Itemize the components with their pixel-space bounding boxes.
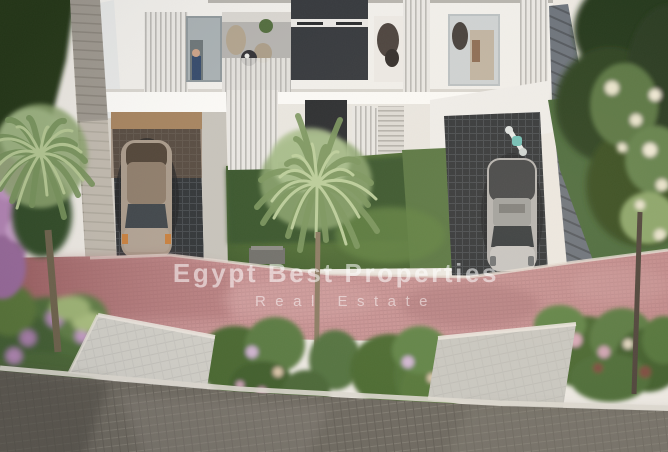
svg-text:Egypt Best Properties: Egypt Best Properties — [173, 258, 499, 288]
svg-text:Real Estate: Real Estate — [255, 293, 437, 310]
